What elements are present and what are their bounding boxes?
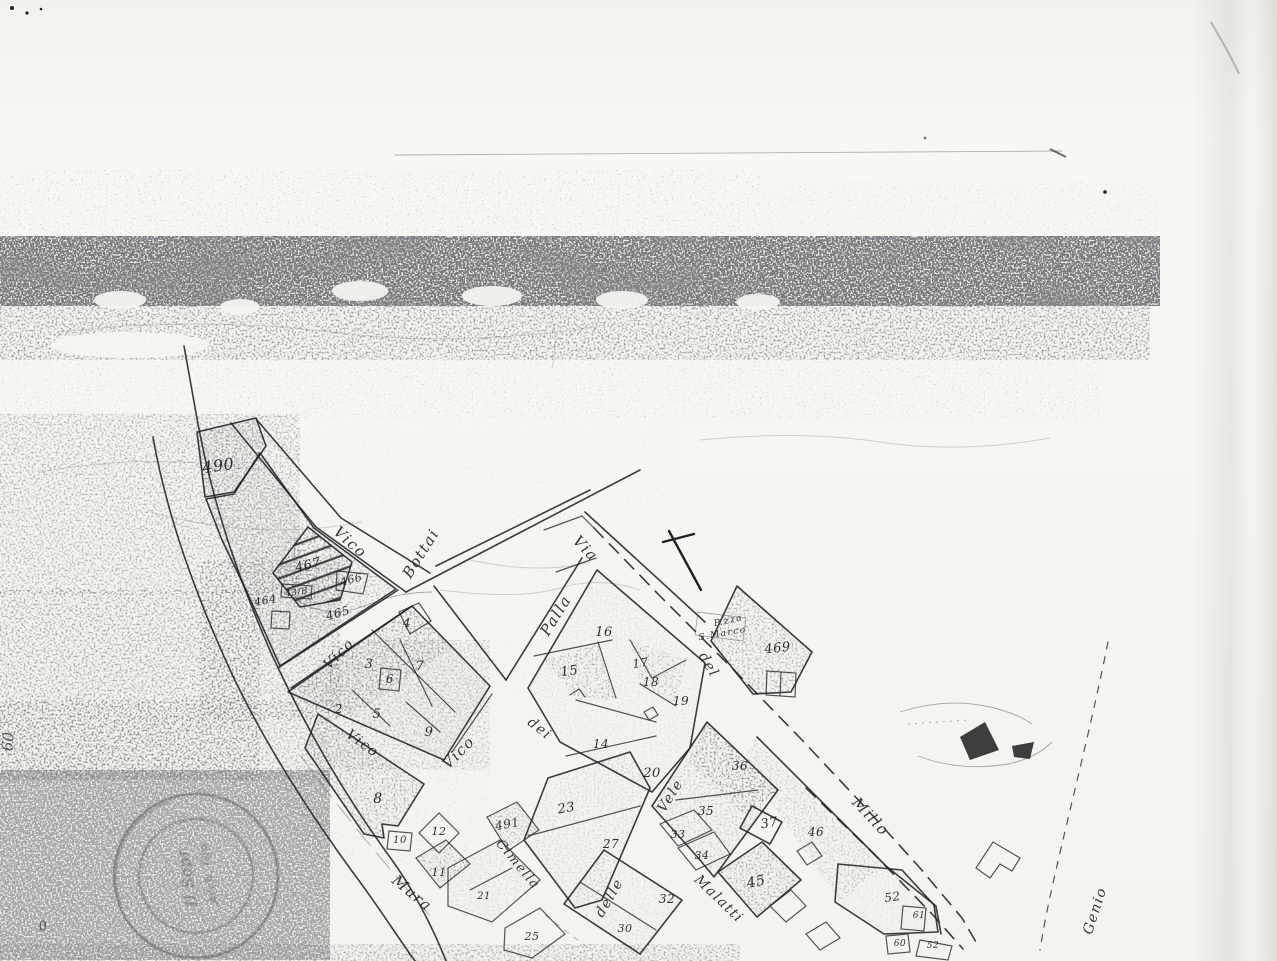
map-geometry — [806, 922, 840, 950]
map-geometry — [395, 151, 1062, 155]
map-geometry — [1103, 190, 1107, 194]
street-label-genio: Genio — [1080, 885, 1110, 936]
parcel-label-60: 60 — [894, 939, 906, 949]
dark-blot-mark — [960, 722, 999, 760]
parcel-label-19: 19 — [673, 694, 689, 708]
parcel-label-12: 12 — [432, 825, 447, 838]
parcel-label-61: 61 — [913, 911, 925, 921]
parcel-label-21: 21 — [476, 891, 491, 902]
parcel-label-9: 9 — [425, 725, 434, 740]
parcel-label-14: 14 — [593, 737, 609, 751]
parcel-label-17: 17 — [631, 655, 649, 671]
parcel-label-34: 34 — [695, 849, 710, 862]
map-geometry — [94, 291, 146, 309]
parcel-label-20: 20 — [642, 766, 661, 781]
parcel-label-15: 15 — [560, 663, 579, 680]
map-geometry — [25, 11, 28, 14]
map-geometry — [332, 281, 388, 301]
map-geometry — [596, 291, 648, 309]
parcel-label-23: 23 — [555, 800, 576, 818]
parcel-label-6: 6 — [386, 672, 394, 686]
map-geometry — [0, 700, 330, 780]
edge-mark-60: 60 — [0, 731, 18, 752]
parcel-label-27: 27 — [602, 837, 619, 851]
parcel-label-4: 4 — [402, 616, 411, 630]
map-geometry — [976, 842, 1020, 878]
map-geometry — [220, 299, 260, 315]
parcel-label-10: 10 — [393, 835, 407, 846]
map-geometry — [40, 8, 43, 11]
map-geometry — [10, 6, 14, 10]
parcel-label-3: 3 — [365, 657, 374, 672]
parcel-label-469: 469 — [763, 640, 792, 658]
parcel-label-25: 25 — [524, 930, 540, 943]
parcel-label-18: 18 — [643, 675, 659, 689]
map-geometry — [0, 236, 1160, 306]
parcel-label-33: 33 — [671, 828, 686, 841]
map-geometry — [462, 286, 522, 306]
parcel-label-46: 46 — [807, 825, 824, 839]
toner-specks — [10, 6, 1107, 194]
parcel-label-35: 35 — [698, 804, 714, 818]
scanned-cadastral-map-page: Il Sopr Arch. Gio VicoBottaiViaPallaP.zz… — [0, 0, 1277, 961]
map-canvas: Il Sopr Arch. Gio VicoBottaiViaPallaP.zz… — [0, 0, 1277, 961]
paper-right-edge-shadow — [1192, 0, 1277, 961]
map-geometry — [908, 720, 968, 724]
parcel-label-37: 37 — [759, 815, 779, 833]
map-geometry — [736, 294, 780, 310]
parcel-label-52: 52 — [927, 941, 939, 951]
parcel-label-36: 36 — [732, 759, 748, 773]
parcel-label-8: 8 — [373, 791, 382, 807]
map-geometry — [900, 703, 1032, 724]
parcel-label-52: 52 — [883, 889, 901, 905]
parcel-label-11: 11 — [432, 866, 447, 879]
parcel-label-30: 30 — [618, 922, 633, 935]
map-geometry — [0, 170, 760, 242]
parcel-label-2: 2 — [334, 702, 343, 716]
parcel-label-16: 16 — [595, 625, 613, 640]
parcel-label-7: 7 — [416, 659, 425, 674]
map-geometry — [0, 356, 1100, 418]
parcel-label-5: 5 — [373, 707, 382, 722]
parcel-label-32: 32 — [659, 892, 675, 906]
map-geometry — [0, 770, 330, 960]
map-geometry — [700, 435, 1050, 447]
map-geometry — [924, 137, 927, 140]
street-label-millo: Millo — [848, 793, 893, 840]
map-geometry — [760, 182, 1160, 240]
map-geometry — [711, 586, 812, 694]
map-geometry — [1050, 149, 1066, 157]
